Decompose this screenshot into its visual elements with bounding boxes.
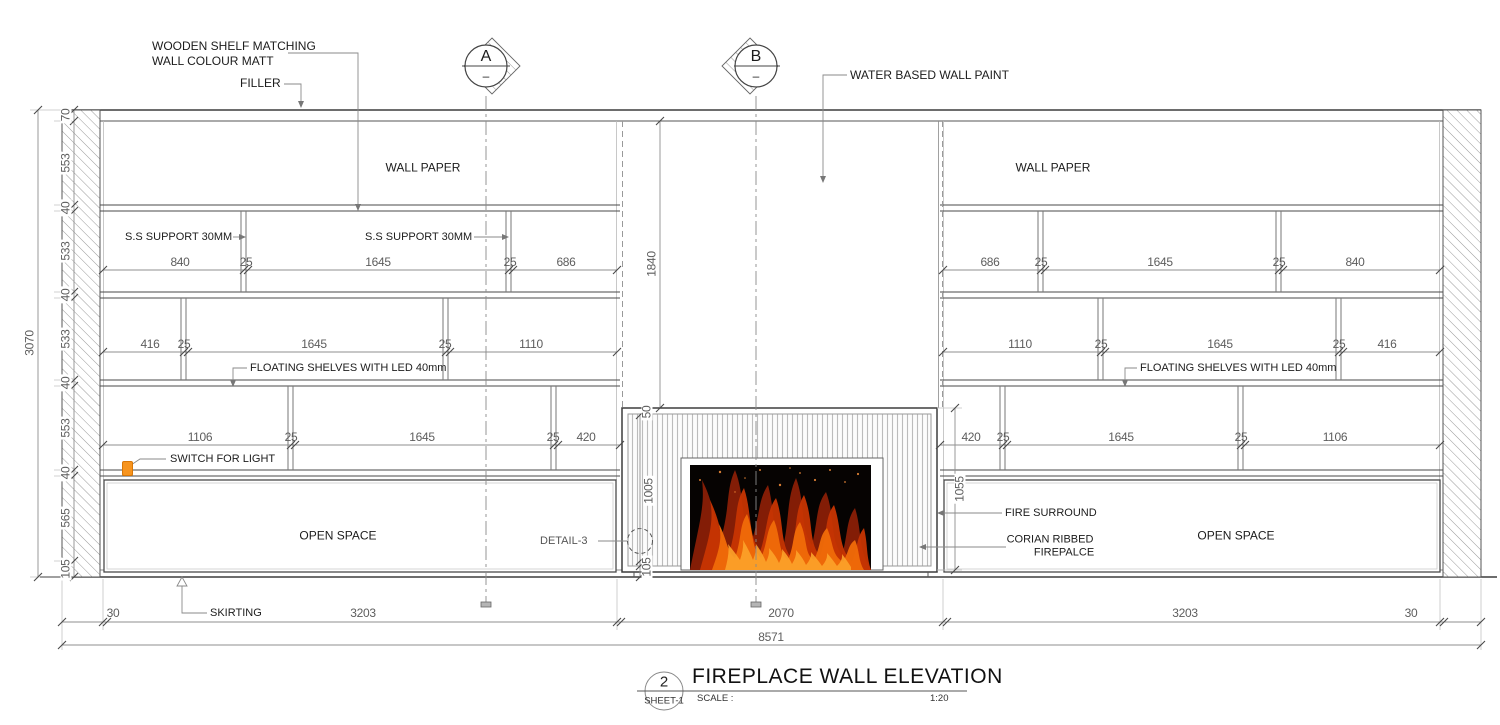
corian-label-line2: FIREPALCE: [1034, 547, 1094, 560]
dim-r2l-25a: 25: [178, 338, 191, 350]
detail-3-label: DETAIL-3: [540, 535, 587, 548]
wooden-shelf-label-line1: WOODEN SHELF MATCHING: [152, 40, 316, 53]
dim-r3r-25b: 25: [1235, 431, 1248, 443]
fireplace-elevation-drawing: WOODEN SHELF MATCHING WALL COLOUR MATT F…: [0, 0, 1500, 725]
floating-shelves-label-left: FLOATING SHELVES WITH LED 40mm: [250, 362, 446, 375]
light-switch-icon: [122, 461, 133, 476]
dim-left-565: 565: [61, 506, 72, 529]
ss-support-label-mid: S.S SUPPORT 30MM: [365, 231, 472, 244]
dim-r3r-420: 420: [961, 431, 980, 443]
section-marker-b-letter: B: [751, 48, 762, 66]
dim-r2r-416: 416: [1377, 338, 1396, 350]
drawing-title: FIREPLACE WALL ELEVATION: [692, 665, 1003, 689]
dim-bottom-2070: 2070: [768, 607, 794, 619]
section-marker-a: [462, 38, 520, 94]
chimney-breast: [623, 121, 943, 408]
skirting-label: SKIRTING: [210, 607, 262, 620]
dim-left-40d: 40: [61, 465, 72, 482]
dim-r1l-25b: 25: [504, 256, 517, 268]
dim-left-70: 70: [61, 107, 72, 124]
dim-r1r-686: 686: [980, 256, 999, 268]
dim-bottom-30r: 30: [1405, 607, 1418, 619]
dim-left-553a: 553: [61, 151, 72, 174]
dim-r3r-25a: 25: [997, 431, 1010, 443]
wooden-shelf-label-line2: WALL COLOUR MATT: [152, 55, 274, 68]
dim-r1l-1645: 1645: [365, 256, 391, 268]
dim-r3r-1106: 1106: [1323, 431, 1348, 443]
wall-paper-label-right: WALL PAPER: [1016, 162, 1091, 175]
dim-r1l-25a: 25: [240, 256, 253, 268]
dim-r3l-420: 420: [576, 431, 595, 443]
dim-r3l-25b: 25: [547, 431, 560, 443]
dim-bottom-30l: 30: [107, 607, 120, 619]
dim-chimney-1840: 1840: [647, 249, 658, 279]
dim-r1r-25a: 25: [1035, 256, 1048, 268]
ss-support-label-left: S.S SUPPORT 30MM: [125, 231, 232, 244]
dim-r2l-1110: 1110: [519, 338, 543, 350]
dim-r2l-25b: 25: [439, 338, 452, 350]
fireplace-flames: [680, 465, 880, 620]
dim-left-40c: 40: [61, 375, 72, 392]
dim-left-553b: 553: [61, 416, 72, 439]
dim-r2l-416: 416: [140, 338, 159, 350]
dim-bottom-3203r: 3203: [1172, 607, 1198, 619]
open-space-label-left: OPEN SPACE: [299, 530, 376, 543]
section-marker-a-sub: –: [483, 69, 490, 83]
dim-left-533b: 533: [61, 327, 72, 350]
dim-base-105: 105: [642, 555, 653, 578]
dim-r3l-25a: 25: [285, 431, 298, 443]
dim-surround-1055: 1055: [955, 474, 966, 504]
switch-label: SWITCH FOR LIGHT: [170, 453, 275, 466]
fire-surround-label: FIRE SURROUND: [1005, 507, 1097, 520]
dim-r2r-25b: 25: [1333, 338, 1346, 350]
titleblock-sheet: SHEET-1: [644, 696, 684, 707]
dim-r2r-1110: 1110: [1008, 338, 1032, 350]
dim-left-40a: 40: [61, 200, 72, 217]
wall-paper-label-left: WALL PAPER: [386, 162, 461, 175]
dim-left-533a: 533: [61, 239, 72, 262]
filler-label: FILLER: [240, 77, 281, 90]
dim-opening-1005: 1005: [644, 476, 655, 506]
section-marker-b: [722, 38, 780, 94]
dim-r1l-686: 686: [556, 256, 575, 268]
titleblock-scale-label: SCALE :: [697, 693, 733, 704]
dim-bottom-3203l: 3203: [350, 607, 376, 619]
floating-shelves-label-right: FLOATING SHELVES WITH LED 40mm: [1140, 362, 1336, 375]
section-marker-a-letter: A: [481, 48, 492, 66]
dim-r2r-25a: 25: [1095, 338, 1108, 350]
open-space-label-right: OPEN SPACE: [1197, 530, 1274, 543]
titleblock-number: 2: [660, 674, 668, 691]
dim-left-40b: 40: [61, 287, 72, 304]
water-paint-label: WATER BASED WALL PAINT: [850, 69, 1009, 82]
titleblock-scale-value: 1:20: [930, 693, 949, 704]
dim-r3r-1645: 1645: [1108, 431, 1134, 443]
corian-label-line1: CORIAN RIBBED: [1007, 534, 1094, 547]
dim-r1l-840: 840: [170, 256, 189, 268]
dim-r2l-1645: 1645: [301, 338, 327, 350]
dim-r1r-25b: 25: [1273, 256, 1286, 268]
dim-left-105: 105: [61, 557, 72, 580]
dim-r1r-1645: 1645: [1147, 256, 1173, 268]
dim-left-total-3070: 3070: [25, 328, 36, 358]
dim-r3l-1645: 1645: [409, 431, 435, 443]
dim-r2r-1645: 1645: [1207, 338, 1233, 350]
dim-bottom-total-8571: 8571: [758, 631, 784, 643]
right-wall-pier: [1443, 110, 1481, 577]
dim-r3l-1106: 1106: [188, 431, 213, 443]
section-marker-b-sub: –: [753, 69, 760, 83]
dim-r1r-840: 840: [1345, 256, 1364, 268]
dim-surround-top-50: 50: [642, 404, 653, 421]
